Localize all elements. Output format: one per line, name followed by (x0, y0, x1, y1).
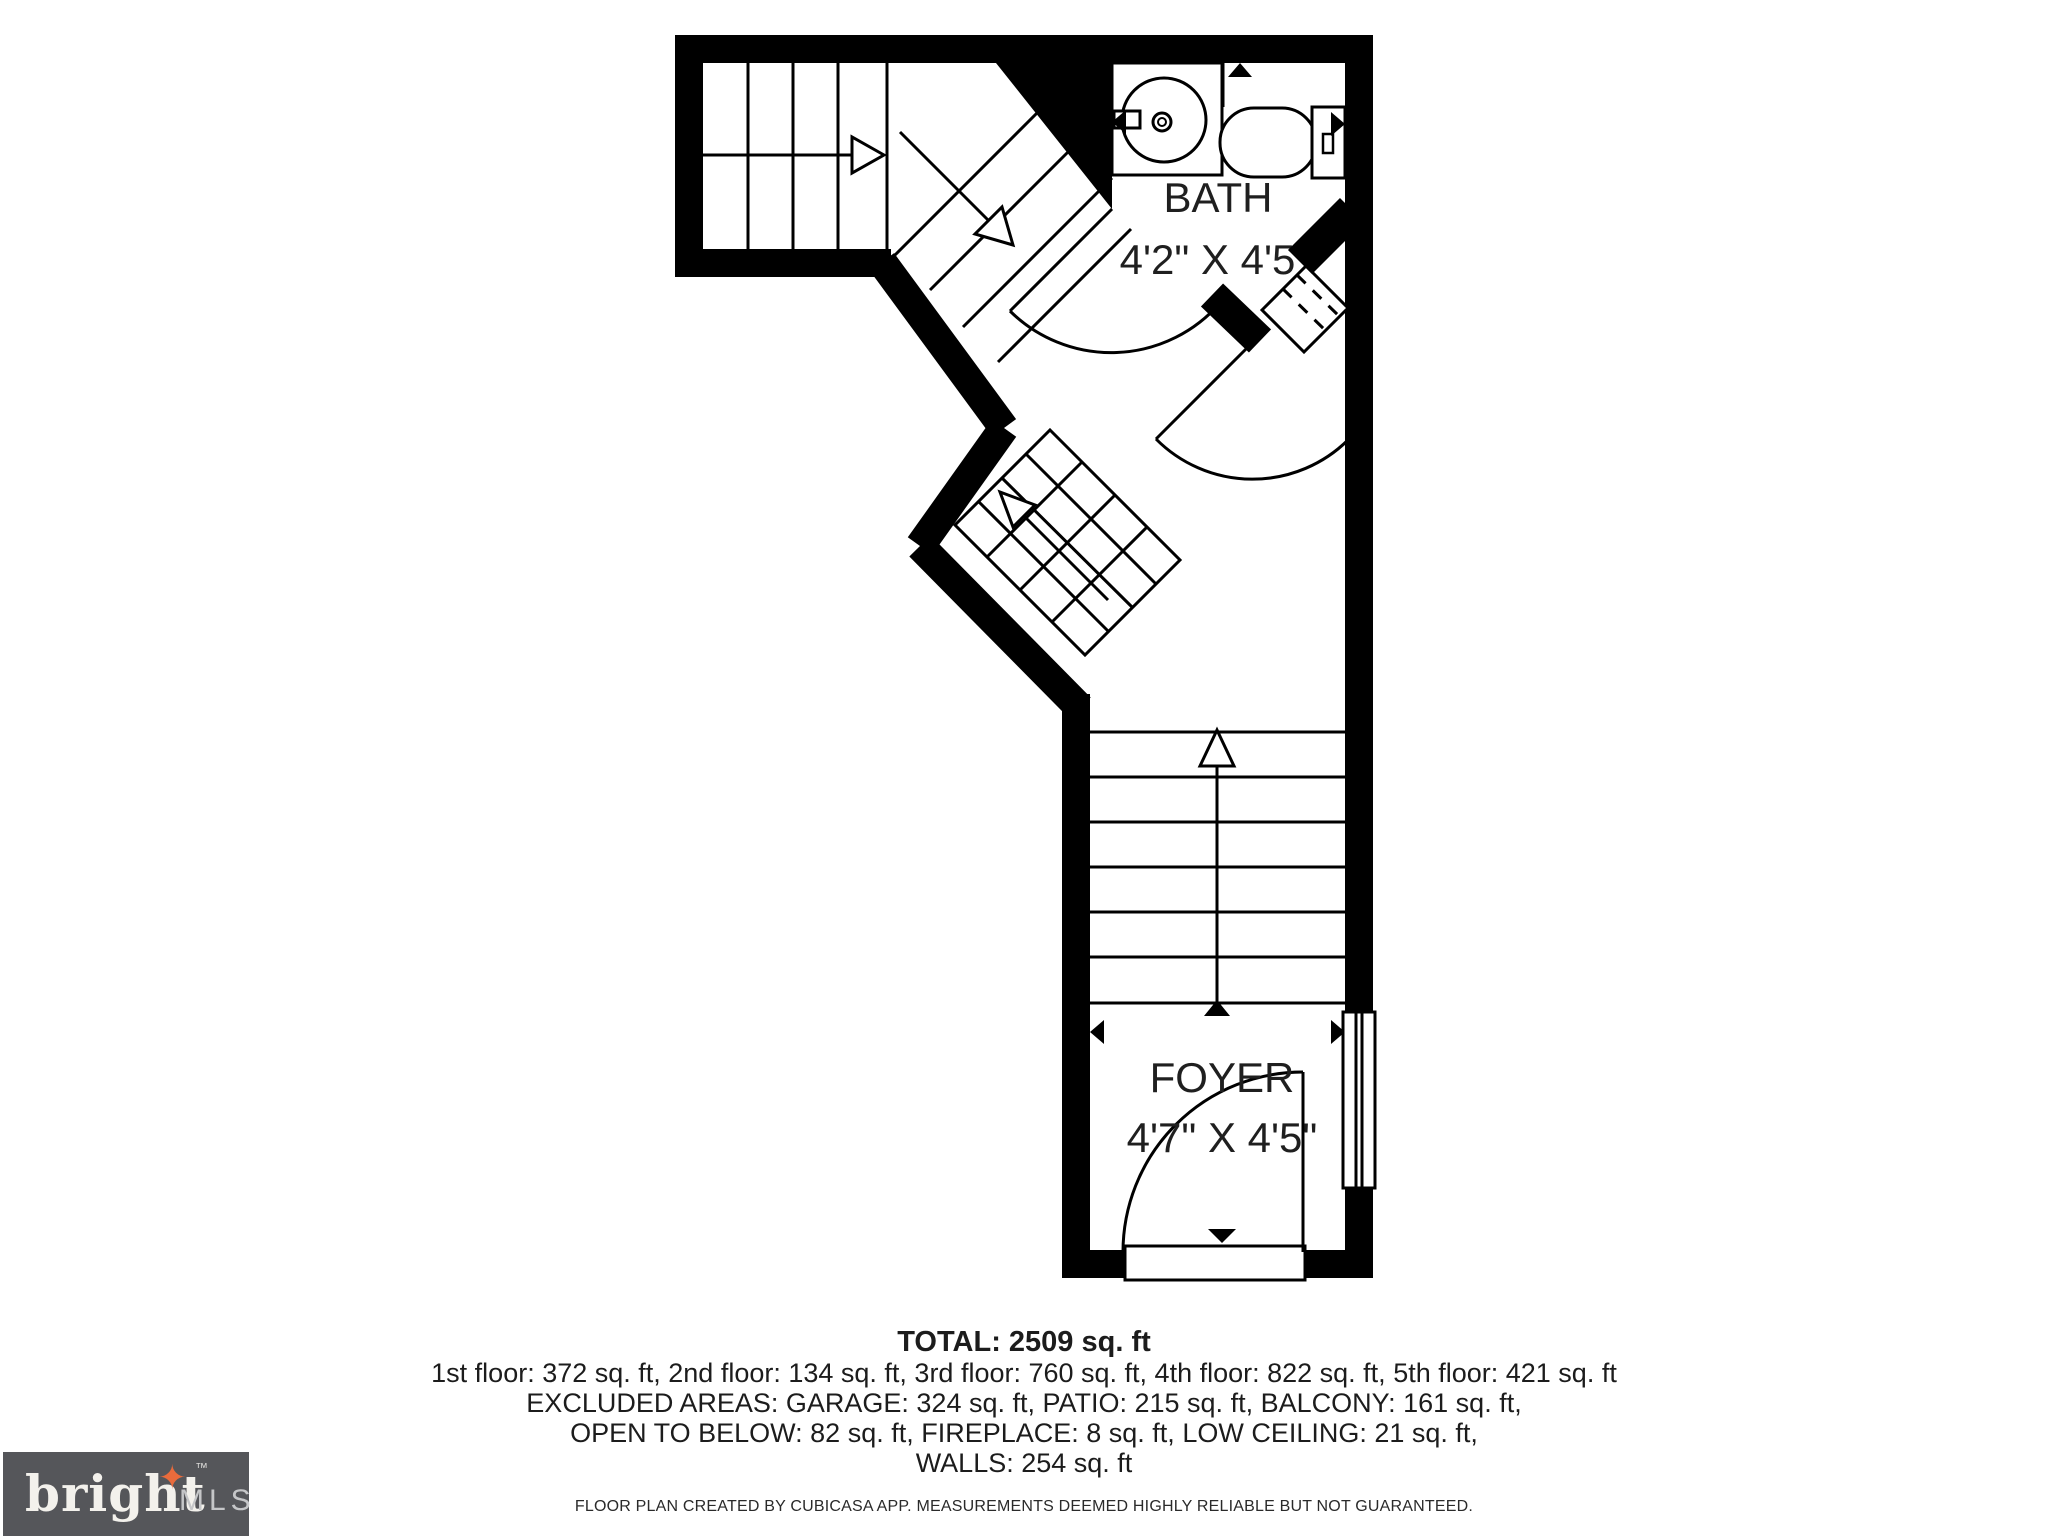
hall-door-leaf (1156, 343, 1252, 439)
entry-door (1123, 1072, 1305, 1280)
window-frame (1343, 1012, 1375, 1188)
bath-door-leaf (1010, 209, 1112, 311)
bath-toilet-flush-button (1323, 134, 1333, 153)
bath-sink-drain-inner (1158, 118, 1166, 126)
stair-arrow-up-icon (1200, 730, 1234, 766)
floor-areas-text: 1st floor: 372 sq. ft, 2nd floor: 134 sq… (0, 1358, 2048, 1388)
foyer-room-dimensions: 4'7" X 4'5" (1127, 1114, 1318, 1161)
wall-stair-block-bottom (675, 249, 891, 277)
disclaimer-text: FLOOR PLAN CREATED BY CUBICASA APP. MEAS… (0, 1498, 2048, 1516)
foyer-room-label: FOYER (1150, 1054, 1295, 1101)
wall-cabinet-top (1300, 210, 1352, 262)
stair-tread (998, 229, 1131, 362)
wall-stair-block-left (675, 35, 703, 277)
excluded-areas-text-2: OPEN TO BELOW: 82 sq. ft, FIREPLACE: 8 s… (0, 1418, 2048, 1448)
bath-fixtures (1112, 63, 1345, 178)
stairs-upper (703, 63, 887, 249)
total-area-text: TOTAL: 2509 sq. ft (0, 1326, 2048, 1358)
entry-door-threshold (1125, 1246, 1305, 1280)
marker-left-icon (1090, 1020, 1104, 1044)
floor-plan-drawing: BATH 4'2" X 4'5" FOYER 4'7" X 4'5" (0, 0, 2048, 1536)
stair-direction-line (900, 132, 990, 222)
floor-plan-page: BATH 4'2" X 4'5" FOYER 4'7" X 4'5" TOTAL… (0, 0, 2048, 1536)
wall-corridor-left (1062, 694, 1090, 1278)
wall-diagonal-a (882, 262, 1004, 428)
excluded-areas-text-1: EXCLUDED AREAS: GARAGE: 324 sq. ft, PATI… (0, 1388, 2048, 1418)
stair-tread (895, 108, 1042, 255)
marker-down-icon (1208, 1229, 1236, 1243)
bath-room-label: BATH (1164, 174, 1273, 221)
bath-door-swing-arc (1010, 303, 1220, 353)
logo-suffix-text: MLS (179, 1484, 256, 1518)
wall-bath-door-jamb (1212, 295, 1260, 341)
stairs-lower (1090, 730, 1345, 1016)
bath-toilet-bowl (1220, 108, 1316, 177)
bright-mls-logo-inner: bright ✦ ™ MLS (3, 1452, 249, 1536)
wall-top (675, 35, 1373, 63)
foyer-window (1343, 1012, 1375, 1188)
stair-arrow-right-icon (852, 137, 884, 173)
logo-trademark-symbol: ™ (195, 1460, 208, 1475)
bright-mls-logo: bright ✦ ™ MLS (3, 1452, 249, 1536)
hall-door-swing-arc (1156, 439, 1348, 479)
bath-room-dimensions: 4'2" X 4'5" (1120, 236, 1311, 283)
stair-tread (963, 178, 1112, 327)
walls-area-text: WALLS: 254 sq. ft (0, 1448, 2048, 1478)
marker-up-icon (1228, 63, 1252, 77)
area-summary: TOTAL: 2509 sq. ft 1st floor: 372 sq. ft… (0, 1326, 2048, 1478)
